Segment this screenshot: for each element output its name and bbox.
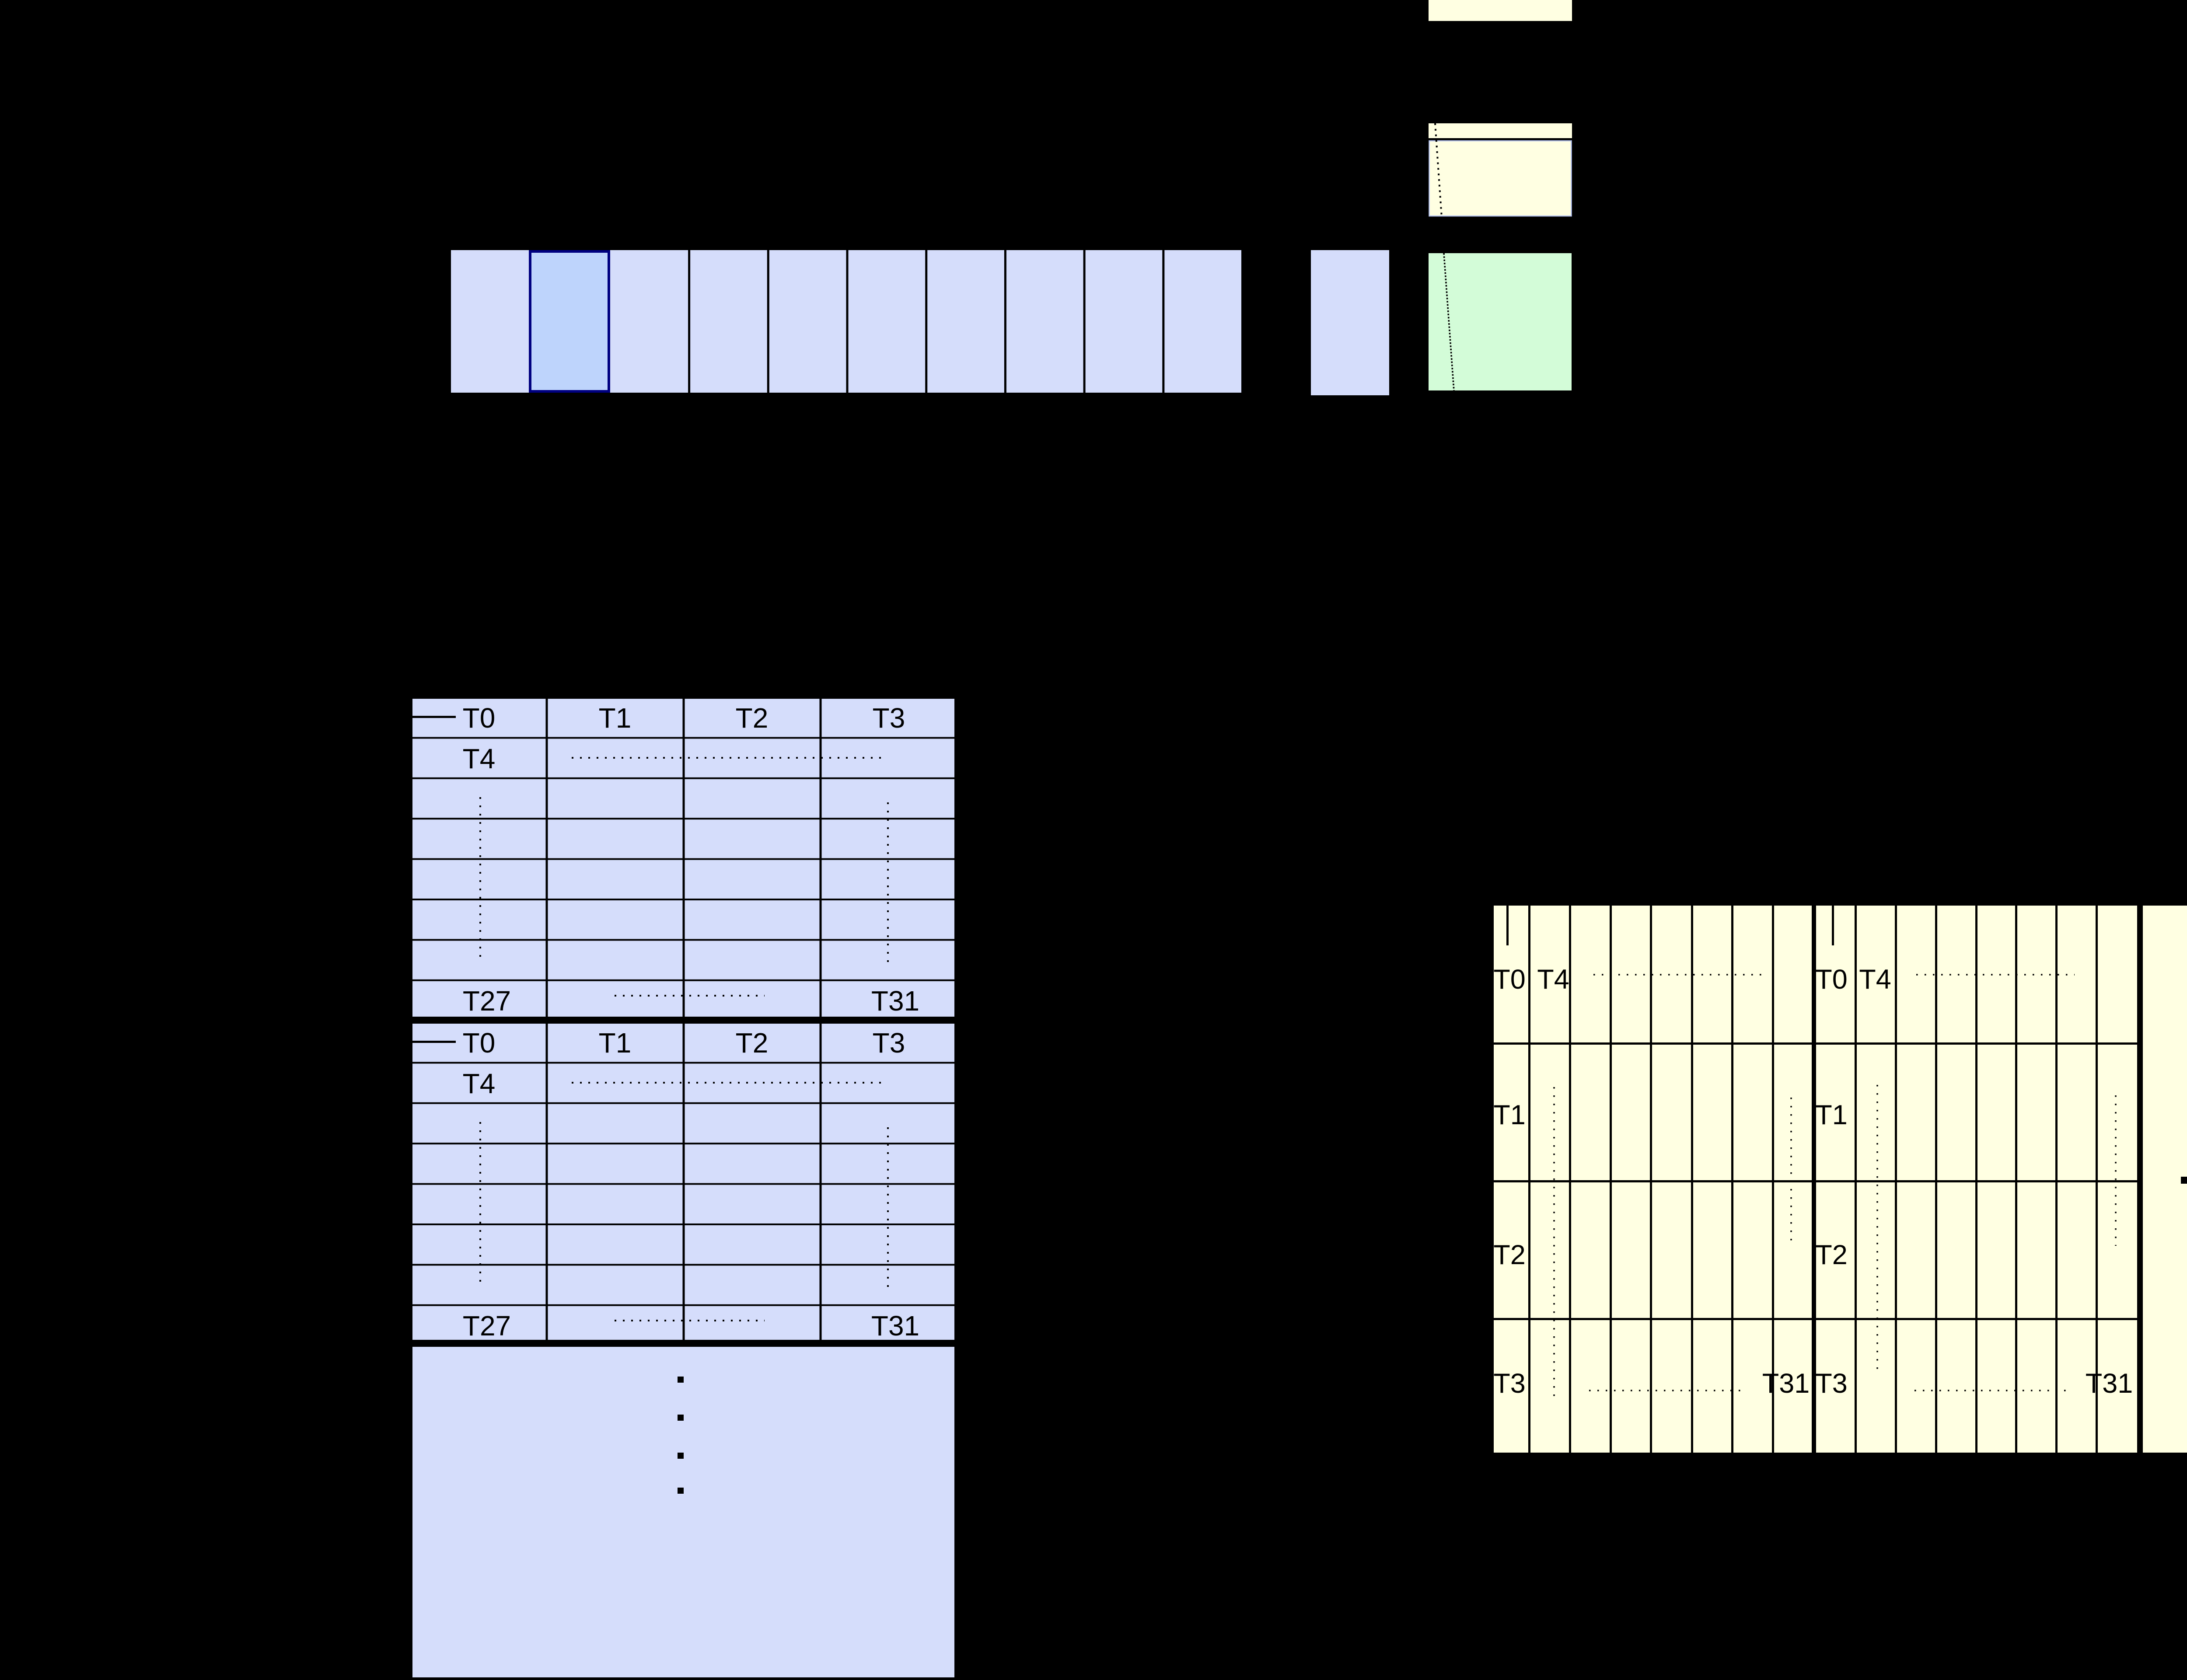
svg-text:T4: T4 xyxy=(1537,964,1569,995)
svg-text:T4: T4 xyxy=(463,743,496,774)
svg-text:T31: T31 xyxy=(2086,1368,2133,1399)
svg-text:T31: T31 xyxy=(871,985,919,1017)
svg-text:T3: T3 xyxy=(1493,1368,1526,1399)
svg-text:T27: T27 xyxy=(463,1310,511,1342)
svg-text:T0: T0 xyxy=(463,1027,496,1059)
svg-text:T4: T4 xyxy=(463,1068,496,1099)
svg-text:T31: T31 xyxy=(1762,1368,1810,1399)
svg-text:T1: T1 xyxy=(1493,1100,1526,1130)
svg-text:T2: T2 xyxy=(736,702,769,734)
svg-text:T0: T0 xyxy=(1493,964,1526,995)
svg-text:T2: T2 xyxy=(1493,1240,1526,1270)
svg-text:T1: T1 xyxy=(599,1027,632,1059)
svg-text:T2: T2 xyxy=(1815,1240,1848,1270)
svg-text:T3: T3 xyxy=(1815,1368,1848,1399)
svg-text:T0: T0 xyxy=(1815,964,1848,995)
svg-text:T3: T3 xyxy=(873,1027,905,1059)
svg-text:T1: T1 xyxy=(1815,1100,1848,1130)
svg-text:T0: T0 xyxy=(463,702,496,734)
svg-text:T4: T4 xyxy=(1859,964,1891,995)
svg-text:T31: T31 xyxy=(871,1310,919,1342)
svg-text:T27: T27 xyxy=(463,985,511,1017)
svg-text:T1: T1 xyxy=(599,702,632,734)
svg-text:T3: T3 xyxy=(873,702,905,734)
svg-text:T2: T2 xyxy=(736,1027,769,1059)
